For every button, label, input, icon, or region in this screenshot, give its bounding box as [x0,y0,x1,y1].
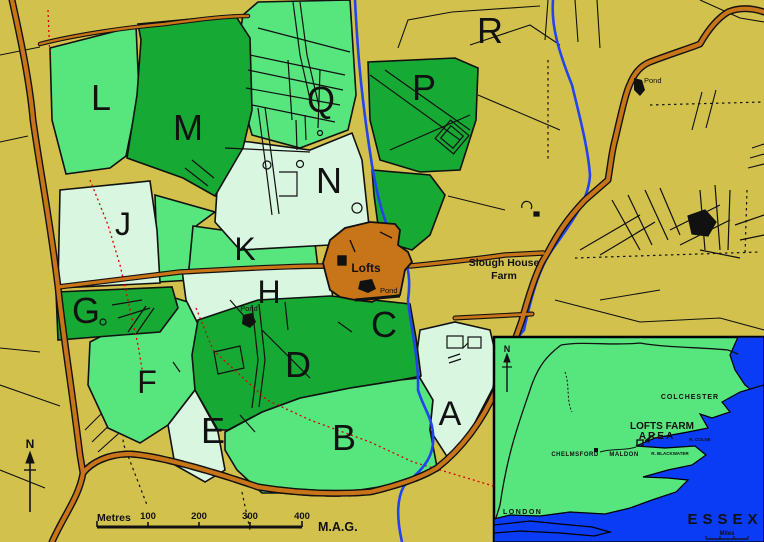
attribution-label: M.A.G. [318,520,358,534]
london-label: LONDON [503,509,542,516]
field-label-p: P [412,67,436,108]
slough-house-label-line1: Slough House [469,257,540,269]
field-label-e: E [201,410,225,451]
essex-title: ESSEX [687,511,762,528]
chelmsford-label: CHELMSFORD [551,452,598,458]
field-label-d: D [285,344,311,385]
scale-tick-100: 100 [140,511,156,522]
colchester-label: COLCHESTER [661,394,719,401]
lofts-farm-label-line2: AREA [639,431,675,442]
field-label-f: F [137,364,157,400]
field-label-n: N [316,160,342,201]
field-label-a: A [439,395,462,433]
field-label-g: G [72,290,100,331]
field-label-r: R [477,10,503,51]
slough-house-label-line2: Farm [491,270,517,282]
field-label-q: Q [307,79,335,120]
pond-northeast-label: Pond [644,76,662,85]
scale-tick-300: 300 [242,511,258,522]
field-j [58,181,160,288]
pond-lofts-label: Pond [380,286,398,295]
pond-h-label: Pond [240,304,258,313]
map-canvas: L M Q P R N K J H G F E D C B A Lofts Sl… [0,0,764,542]
lofts-label: Lofts [351,261,381,275]
inset-map: COLCHESTER LOFTS FARM AREA CHELMSFORD MA… [494,337,764,542]
north-arrow-label: N [26,437,35,451]
field-label-h: H [257,274,280,310]
river-colne-label: R. COLNE [689,437,711,442]
scale-tick-200: 200 [191,511,207,522]
scale-unit-label: Metres [97,512,131,524]
field-label-l: L [91,77,111,118]
river-blackwater-label: R. BLACKWATER [651,451,689,456]
inset-north-label: N [504,344,511,354]
scale-tick-400: 400 [294,511,310,522]
inset-scale-label: Miles [719,531,735,537]
field-label-m: M [173,107,203,148]
field-label-k: K [234,231,255,267]
field-label-j: J [115,206,131,242]
field-label-c: C [371,304,397,345]
field-label-b: B [332,417,356,458]
maldon-label: MALDON [609,452,638,458]
lofts-farm-map: L M Q P R N K J H G F E D C B A Lofts Sl… [0,0,764,542]
